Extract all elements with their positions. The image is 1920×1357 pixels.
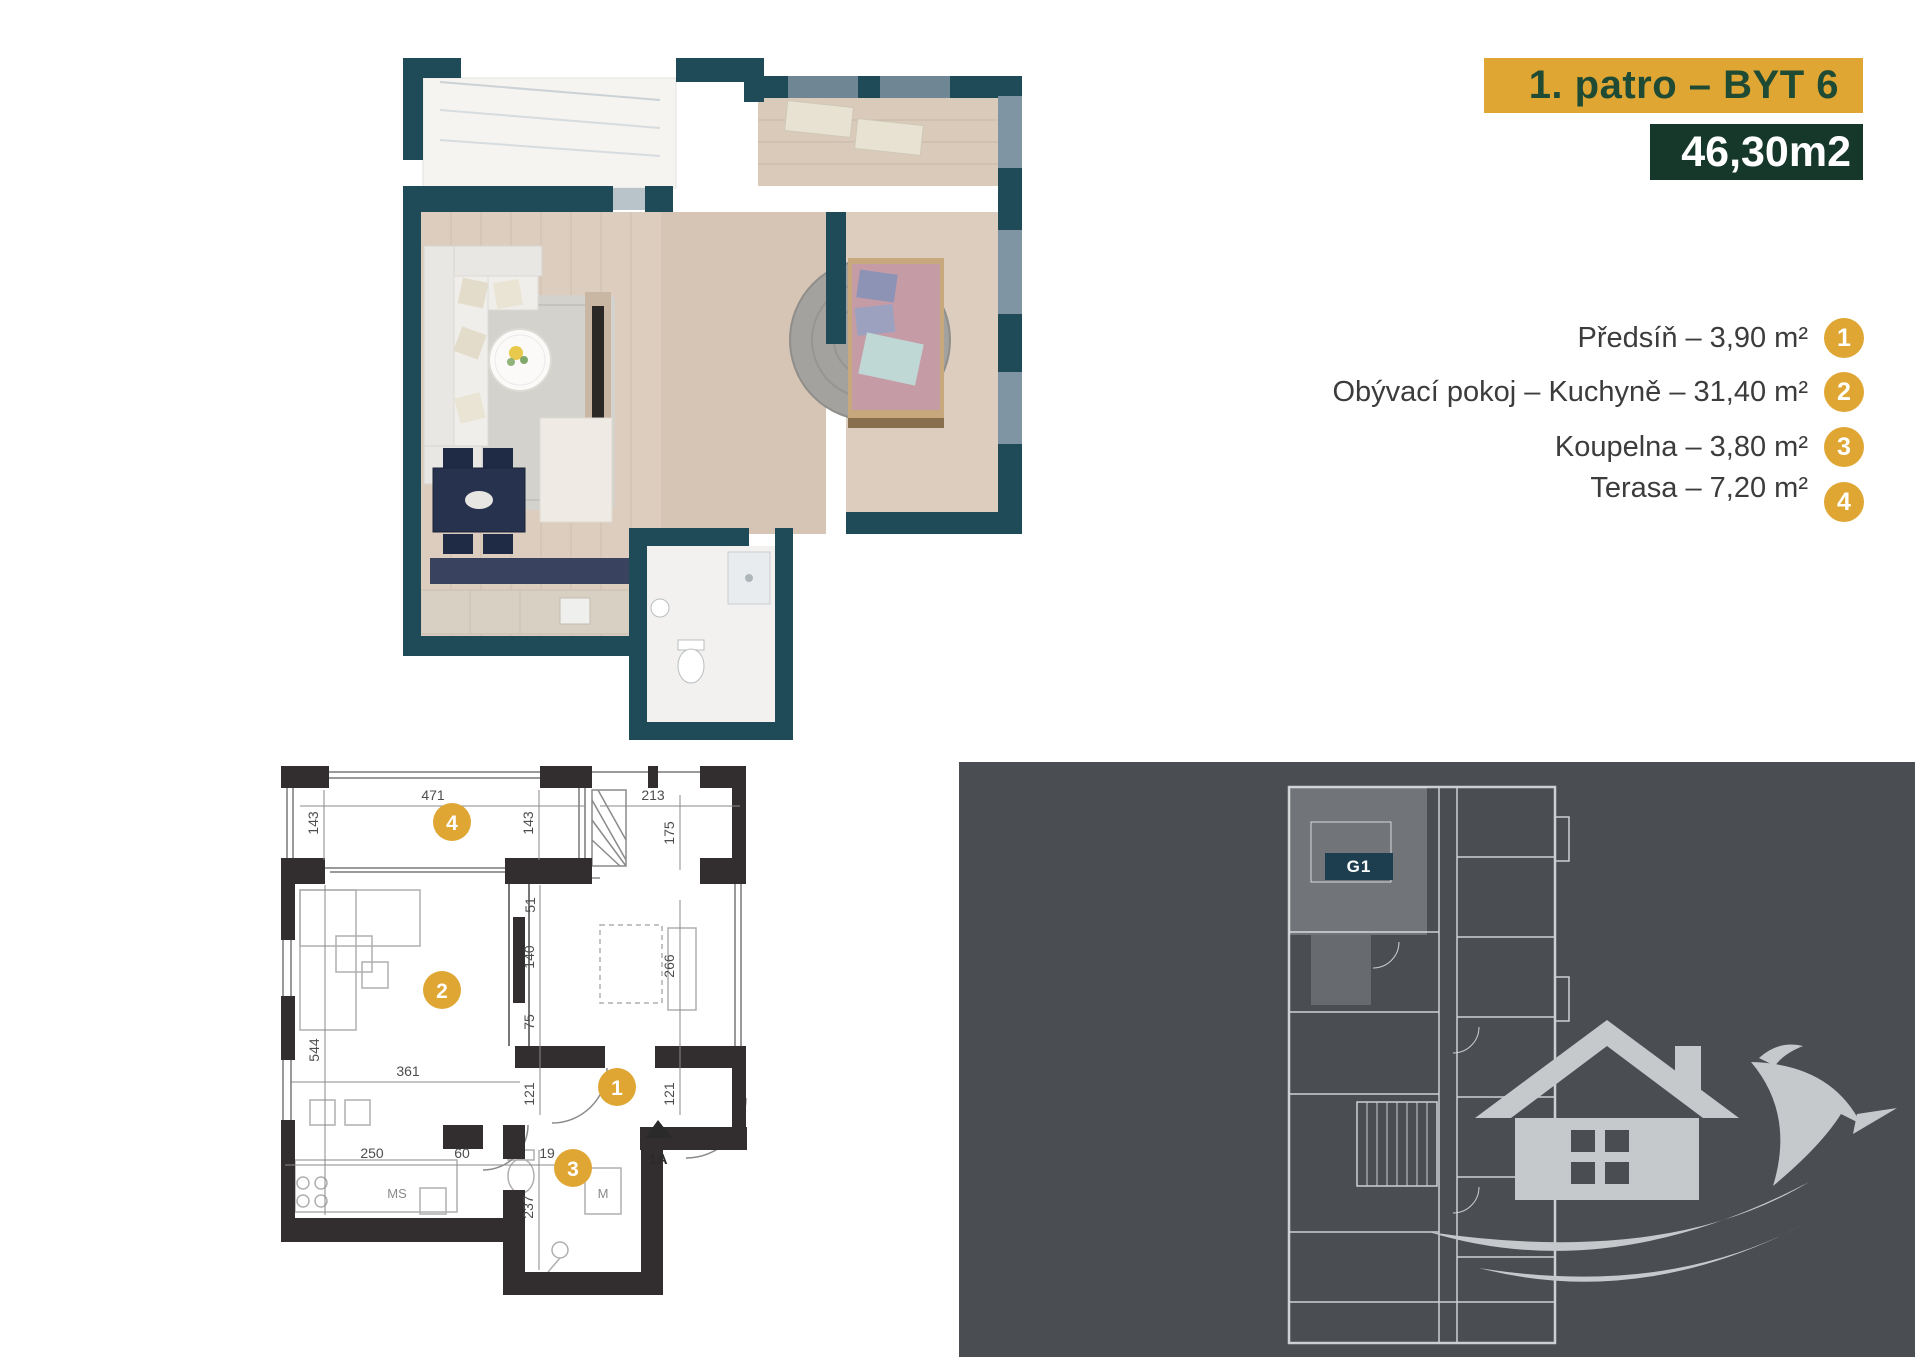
plan-wardrobe-hatch — [592, 790, 626, 866]
logo-bird-head-icon — [1759, 1045, 1803, 1067]
plan-furniture — [295, 890, 696, 1272]
washer-label: M — [598, 1186, 609, 1201]
coffee-table — [489, 329, 551, 391]
legend-row-terasa: Terasa – 7,20 m² 4 — [1590, 468, 1864, 508]
site-plan-drawing: G1 — [959, 762, 1915, 1357]
legend-label: Obývací pokoj – Kuchyně – 31,40 m² — [1332, 376, 1808, 409]
dim-label: 544 — [306, 1038, 322, 1062]
dim-label: 175 — [661, 821, 677, 845]
kitchen-bench — [430, 558, 635, 584]
dim-label: 361 — [396, 1063, 420, 1079]
kitchen-tall-cabinet — [540, 418, 612, 522]
plan-marker-4-num: 4 — [446, 812, 458, 835]
dim-label: 121 — [661, 1082, 677, 1106]
legend-marker-4: 4 — [1824, 482, 1864, 522]
dim-label: 143 — [305, 811, 321, 835]
plan-marker-1-num: 1 — [611, 1077, 623, 1100]
dim-label: 121 — [521, 1082, 537, 1106]
legend-label: Předsíň – 3,90 m² — [1578, 322, 1809, 355]
dim-label: 140 — [521, 945, 537, 969]
brochure-page: 1. patro – BYT 6 46,30m2 Předsíň – 3,90 … — [0, 0, 1920, 1357]
dim-label: 237 — [520, 1195, 536, 1219]
kitchen-counter — [421, 590, 636, 634]
legend-marker-2: 2 — [1824, 372, 1864, 412]
legend-row-predsin: Předsíň – 3,90 m² 1 — [1578, 318, 1865, 358]
legend-row-koupelna: Koupelna – 3,80 m² 3 — [1555, 427, 1864, 467]
watermark-logo — [1429, 1020, 1897, 1282]
dim-label: 60 — [454, 1145, 470, 1161]
logo-bird-beak-icon — [1853, 1108, 1897, 1134]
dim-label: 471 — [421, 787, 445, 803]
legend-label: Koupelna – 3,80 m² — [1555, 431, 1808, 464]
floorplan-2d: 471 213 143 143 175 51 140 75 266 544 36… — [270, 755, 760, 1310]
kitchen-label: MS — [387, 1186, 407, 1201]
plan-marker-2-num: 2 — [436, 980, 448, 1003]
tv — [592, 306, 604, 426]
floor-apartment-label: 1. patro – BYT 6 — [1529, 63, 1839, 108]
logo-wave2-icon — [1479, 1224, 1805, 1282]
dim-label: 266 — [661, 954, 677, 978]
dim-label: 213 — [641, 787, 665, 803]
plan-marker-3-num: 3 — [567, 1158, 579, 1181]
site-plan-panel: G1 — [959, 762, 1915, 1357]
logo-bird-body-icon — [1751, 1062, 1861, 1186]
dim-label: 51 — [522, 897, 538, 913]
unit-g1-highlight-tail — [1311, 935, 1371, 1005]
unit-g1-label: G1 — [1347, 857, 1372, 876]
total-area-box: 46,30m2 — [1650, 124, 1863, 180]
bed — [848, 258, 944, 428]
legend-row-obyvaci-pokoj: Obývací pokoj – Kuchyně – 31,40 m² 2 — [1332, 372, 1864, 412]
dim-label: 143 — [520, 811, 536, 835]
total-area-label: 46,30m2 — [1681, 128, 1851, 177]
legend-label: Terasa – 7,20 m² — [1590, 472, 1808, 505]
floor-apartment-banner: 1. patro – BYT 6 — [1484, 58, 1863, 113]
legend-marker-1: 1 — [1824, 318, 1864, 358]
dim-label: 75 — [521, 1014, 537, 1030]
entrance-label: 1A — [648, 1151, 667, 1168]
terrace-top-left-floor — [423, 78, 676, 188]
logo-chimney-icon — [1675, 1046, 1701, 1094]
dim-label: 250 — [360, 1145, 384, 1161]
dim-label: 19 — [539, 1145, 555, 1161]
legend-marker-3: 3 — [1824, 427, 1864, 467]
render-3d — [395, 50, 1025, 750]
